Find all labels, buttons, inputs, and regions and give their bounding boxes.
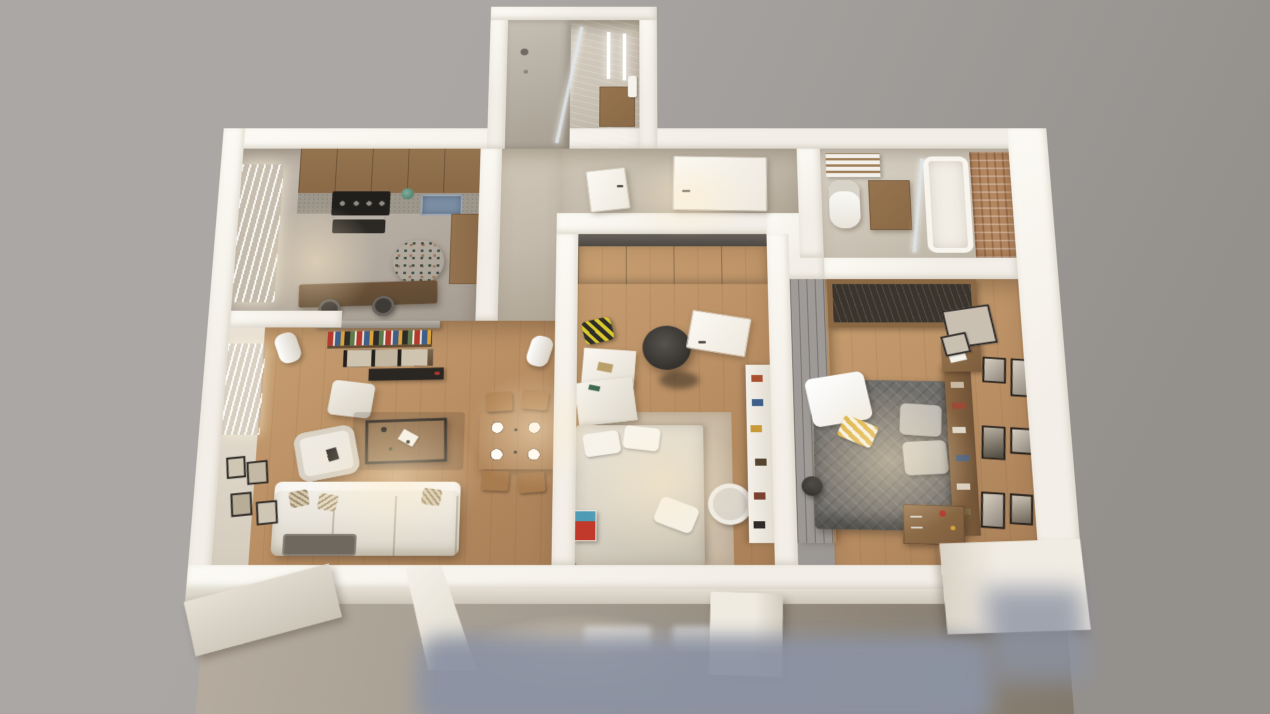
- bedroom-small-left-wall: [551, 234, 578, 565]
- shower-bath-left-wall: [487, 7, 509, 149]
- apartment-model: [175, 7, 1095, 714]
- front-door: [673, 156, 768, 212]
- kitchen-sink: [420, 195, 463, 216]
- shower-bath-top-wall: [491, 7, 657, 20]
- gray-pillow: [902, 440, 949, 476]
- kitchen-side-cabinet: [449, 214, 481, 284]
- dresser-handles: [910, 516, 922, 518]
- gallery-photo: [982, 426, 1006, 461]
- corridor-floor: [498, 149, 562, 321]
- oven: [332, 217, 386, 233]
- entry-right-wall: [797, 149, 824, 258]
- gallery-photo: [1009, 493, 1033, 525]
- bookshelf-items: [751, 375, 762, 382]
- sofa-ottoman-tray: [282, 534, 357, 556]
- living-window-curtain: [221, 343, 265, 434]
- sofa-throw-pillow: [316, 493, 339, 512]
- laundry-basket: [708, 483, 753, 524]
- sliding-wardrobe-doors: [578, 246, 768, 284]
- wardrobe-beam: [578, 234, 766, 246]
- kitchen-cabinet-seams: [298, 149, 482, 193]
- wall-frames-left: [226, 456, 246, 479]
- towel-shelf: [825, 153, 880, 177]
- floorplan-render-scene: [0, 0, 1270, 714]
- toilet: [828, 180, 861, 228]
- dining-chair: [521, 389, 549, 410]
- picture-row: [343, 349, 433, 367]
- media-shelf-books: [327, 330, 432, 349]
- front-door-handle: [682, 190, 690, 192]
- sofa-throw-pillow: [421, 488, 443, 506]
- dining-chair: [486, 391, 513, 412]
- ground-shadow-right: [984, 587, 1089, 681]
- master-floor-lamp: [801, 476, 823, 496]
- floor-lamp-shadow: [659, 372, 699, 389]
- bathtub: [923, 156, 974, 252]
- gallery-photo: [981, 491, 1005, 529]
- gas-hob: [331, 191, 390, 215]
- white-desk-lower: [574, 377, 638, 427]
- master-dresser: [903, 504, 966, 546]
- dresser-items: [939, 510, 946, 516]
- floor-lamp-shade: [642, 326, 691, 370]
- gallery-photo: [982, 357, 1005, 384]
- inner-door-handle: [617, 185, 623, 187]
- gray-pillow: [899, 403, 941, 437]
- kitchen-bottom-wall: [230, 311, 342, 328]
- tv-cable: [434, 372, 440, 375]
- bath-bottom-wall: [824, 258, 1018, 279]
- shower-towel: [628, 76, 637, 97]
- inner-door: [585, 167, 630, 212]
- dining-chair: [481, 470, 509, 491]
- tv: [368, 368, 443, 381]
- bed-small-pillow: [622, 425, 661, 452]
- color-nightstand: [573, 510, 596, 541]
- door-handle: [698, 341, 705, 344]
- headboard-books: [951, 382, 965, 388]
- mirror-lights: [607, 32, 611, 79]
- dining-table: [478, 413, 553, 469]
- bath-vanity-cabinet: [868, 180, 912, 230]
- ground-shadow: [415, 636, 995, 714]
- dining-chair: [518, 472, 546, 494]
- white-blanket: [804, 371, 874, 428]
- kitchen-corridor-wall: [475, 149, 502, 321]
- shower-bath-right-wall: [639, 7, 657, 149]
